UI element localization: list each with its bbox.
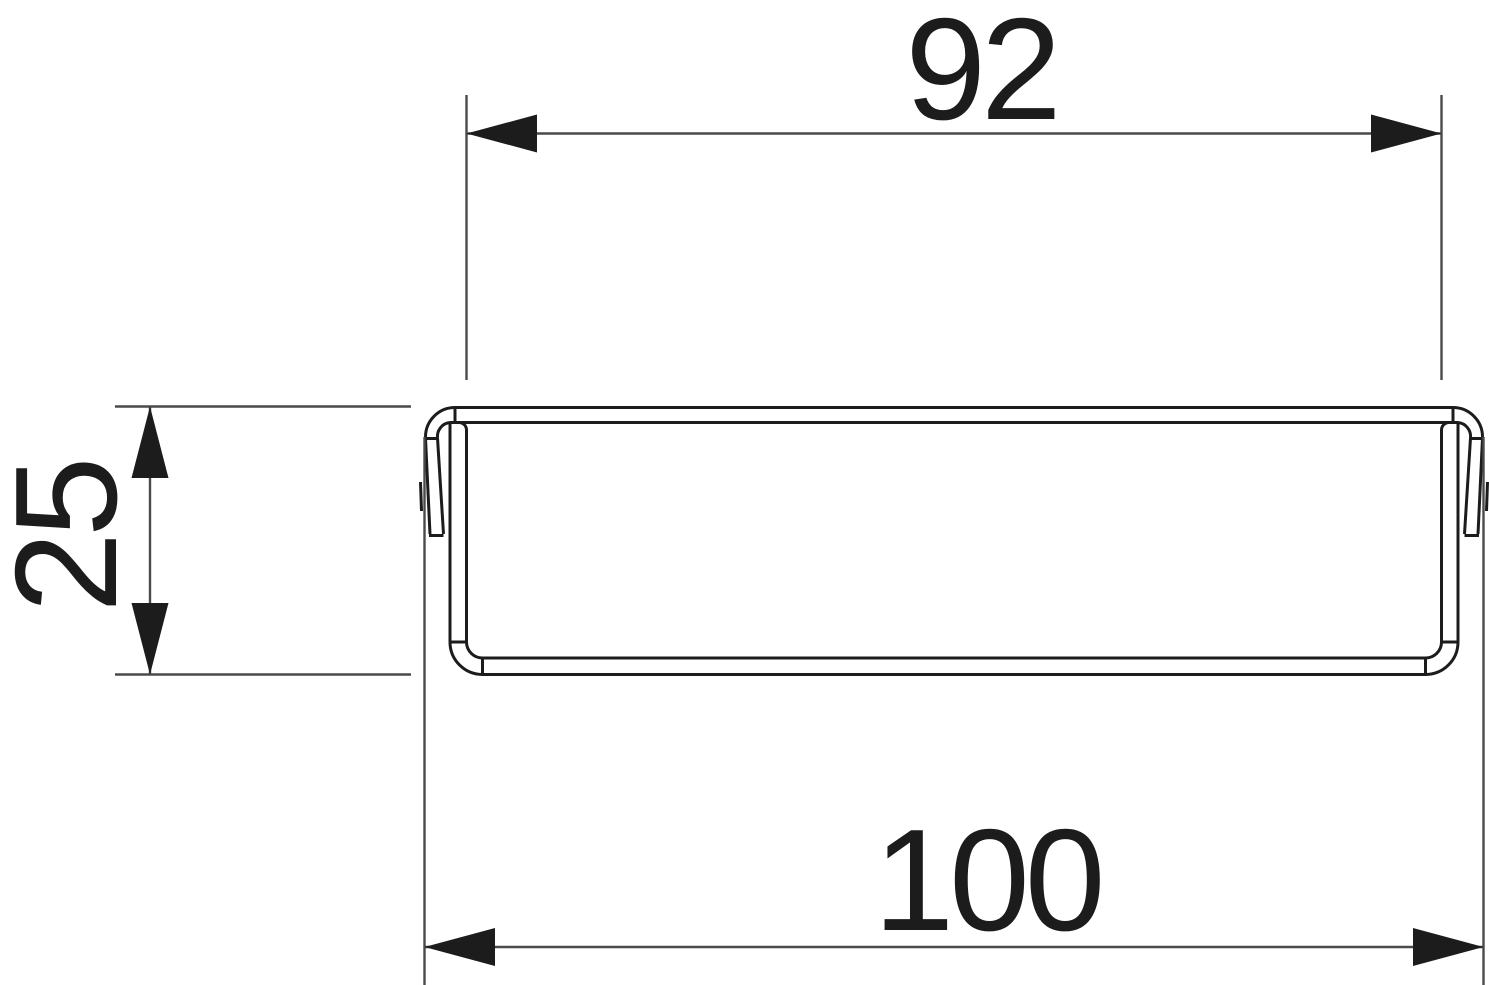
arrowhead-left-icon	[425, 928, 496, 966]
dimension-92-label: 92	[905, 0, 1056, 150]
corner-arc-inner-left	[437, 423, 450, 439]
latch-rib-right	[1487, 482, 1488, 511]
skirt-outer-left	[426, 439, 431, 535]
base-outline	[450, 423, 1458, 675]
corner-arc-inner-right	[1458, 423, 1471, 439]
dimension-100: 100	[425, 437, 1484, 985]
bottom-arc-inner-left	[467, 642, 483, 658]
latch-rib-left	[421, 482, 422, 511]
arrowhead-down-icon	[132, 603, 169, 675]
dimension-92: 92	[467, 0, 1442, 380]
arrowhead-right-icon	[1371, 115, 1442, 153]
skirt-inner-right	[1465, 438, 1471, 534]
dimension-25-label: 25	[0, 461, 147, 612]
object-profile	[421, 408, 1488, 675]
technical-drawing-canvas: 92 25 100	[0, 0, 1489, 985]
dimension-100-label: 100	[874, 799, 1101, 961]
dimension-drawing: 92 25 100	[0, 0, 1489, 985]
dimension-25: 25	[0, 407, 411, 675]
bottom-arc-inner-right	[1426, 642, 1442, 658]
skirt-outer-right	[1478, 439, 1483, 535]
wall-inner-left	[459, 423, 467, 643]
arrowhead-right-icon	[1413, 928, 1484, 966]
wall-inner-right	[1442, 423, 1450, 643]
skirt-inner-left	[438, 438, 444, 534]
arrowhead-left-icon	[467, 115, 538, 153]
cover-outline	[421, 408, 1488, 536]
